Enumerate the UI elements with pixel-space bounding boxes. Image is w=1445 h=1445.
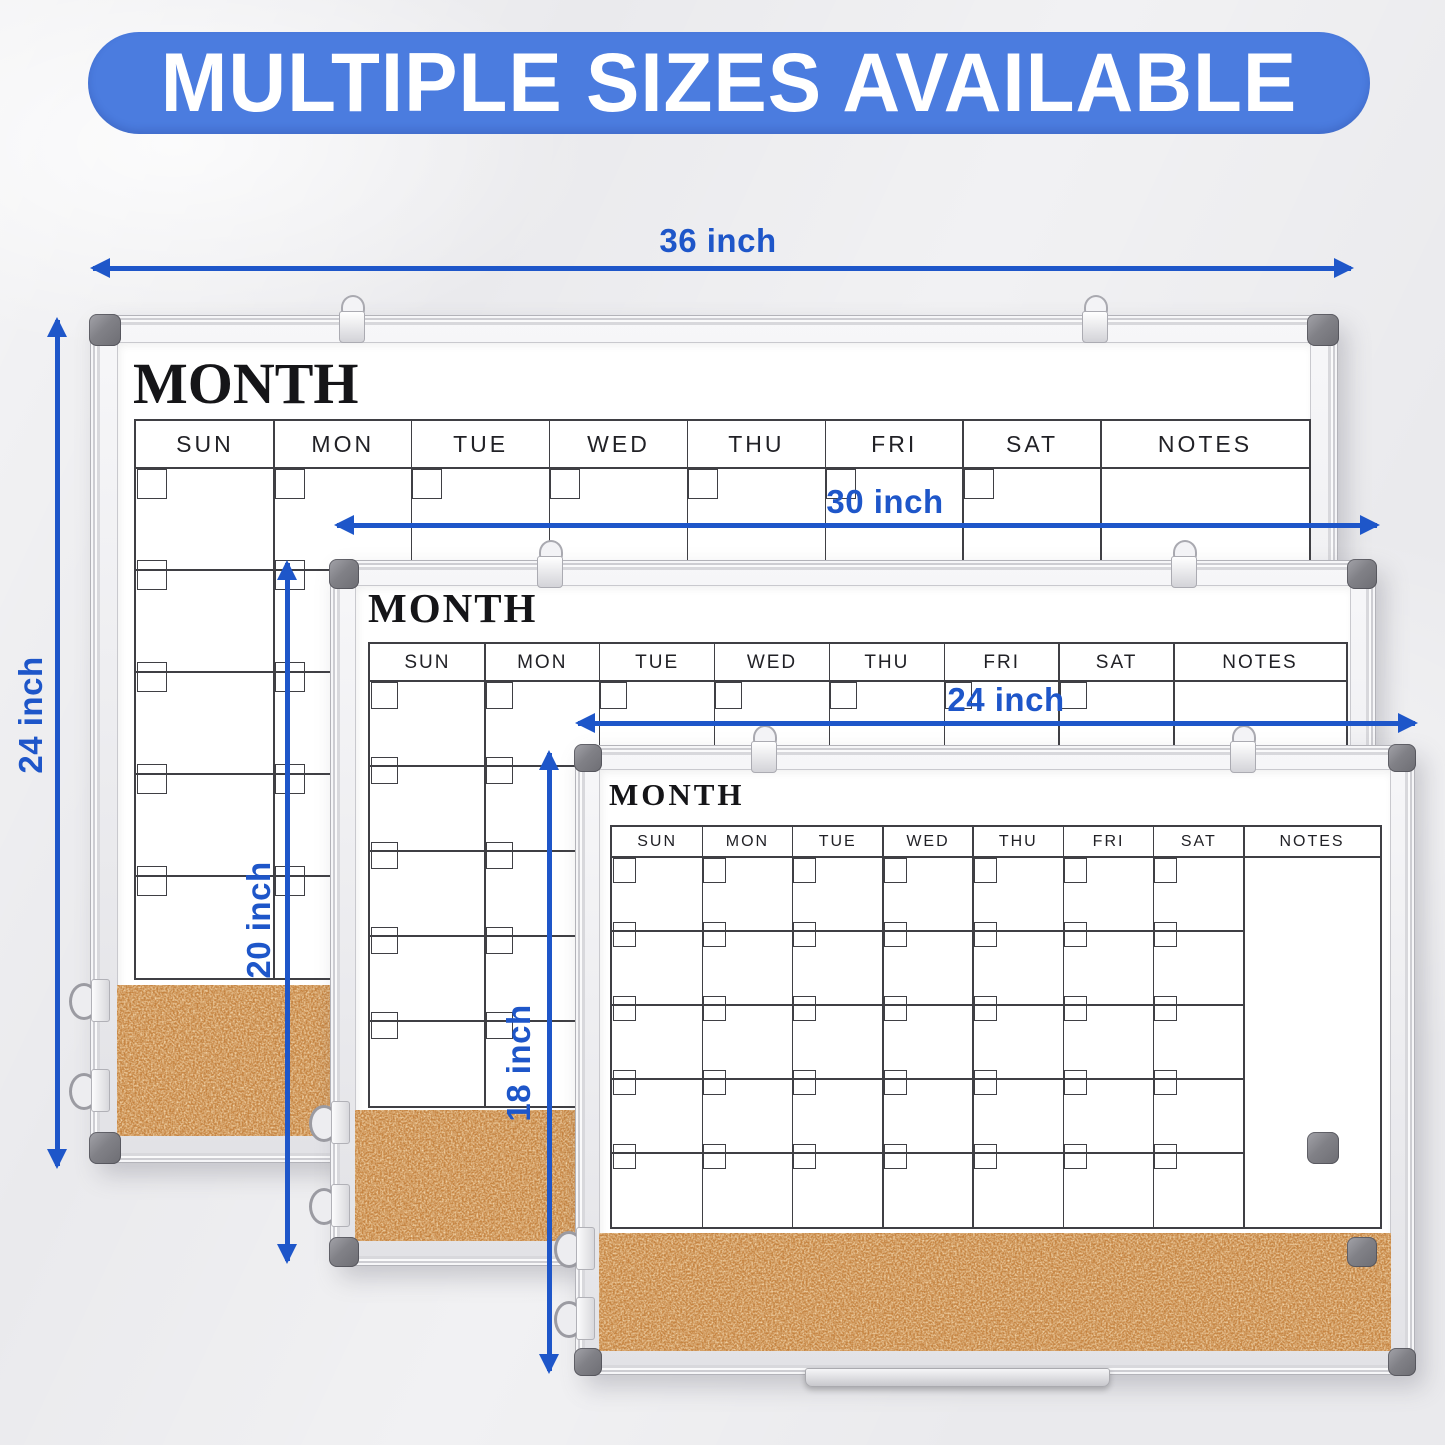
side-clip (69, 1069, 117, 1111)
date-corner-box (1064, 1144, 1087, 1169)
dimension-arrow-20-inch-height: 20 inch (285, 563, 290, 1261)
dimension-arrow-24-inch-height: 24 inch (55, 320, 60, 1166)
date-corner-box (613, 1144, 636, 1169)
banner-text: MULTIPLE SIZES AVAILABLE (161, 35, 1298, 131)
corner-cap (574, 744, 602, 772)
date-corner-box (1154, 1070, 1177, 1095)
day-header-cell: TUE (600, 644, 715, 681)
marker-tray (805, 1368, 1110, 1387)
date-corner-box (884, 858, 907, 883)
calendar-grid: SUNMONTUEWEDTHUFRISATNOTES (610, 825, 1382, 1229)
dimension-arrow-36-inch-width: 36 inch (93, 266, 1351, 271)
day-header-cell: TUE (412, 421, 550, 468)
dimension-label-24-inch-width: 24 inch (947, 681, 1064, 719)
date-corner-box (1064, 1070, 1087, 1095)
date-corner-box (703, 1144, 726, 1169)
calendar-board-24x18-inch: MONTHSUNMONTUEWEDTHUFRISATNOTES (575, 745, 1415, 1375)
hanging-hook (748, 725, 780, 775)
date-corner-box (486, 927, 513, 954)
corner-cap (1347, 559, 1377, 589)
date-corner-box (884, 1144, 907, 1169)
date-corner-box (613, 1070, 636, 1095)
dimension-label-36-inch: 36 inch (659, 222, 776, 260)
day-header-cell: THU (687, 421, 825, 468)
day-header-cell: TUE (793, 827, 883, 857)
hanging-hook (1168, 540, 1200, 590)
corner-cap (329, 559, 359, 589)
date-corner-box (1064, 996, 1087, 1021)
date-corner-box (793, 858, 816, 883)
date-corner-box (613, 922, 636, 947)
date-corner-box (830, 682, 857, 709)
month-title: MONTH (609, 779, 745, 812)
side-clip (309, 1101, 357, 1143)
day-header-cell: THU (829, 644, 944, 681)
date-corner-box (974, 1070, 997, 1095)
corner-cap (574, 1348, 602, 1376)
date-corner-box (371, 927, 398, 954)
day-header-cell: SUN (370, 644, 485, 681)
date-corner-box (884, 1070, 907, 1095)
date-corner-box (371, 757, 398, 784)
date-corner-box (974, 1144, 997, 1169)
date-corner-box (688, 469, 718, 499)
side-clip (554, 1227, 602, 1269)
date-corner-box (486, 682, 513, 709)
day-header-cell: SAT (963, 421, 1101, 468)
date-corner-box (550, 469, 580, 499)
notes-header-cell: NOTES (1174, 644, 1346, 681)
date-corner-box (275, 469, 305, 499)
date-corner-box (703, 1070, 726, 1095)
dimension-label-20-inch: 20 inch (240, 861, 278, 978)
date-corner-box (793, 1144, 816, 1169)
day-header-cell: THU (973, 827, 1063, 857)
date-corner-box (1154, 1144, 1177, 1169)
day-header-cell: WED (550, 421, 688, 468)
side-clip (554, 1297, 602, 1339)
date-corner-box (974, 922, 997, 947)
date-corner-box (793, 922, 816, 947)
dimension-arrow-24-inch-width: 24 inch (578, 721, 1415, 726)
dimension-label-30-inch: 30 inch (826, 483, 943, 521)
date-corner-box (974, 858, 997, 883)
day-header-cell: FRI (825, 421, 963, 468)
dimension-arrow-30-inch-width: 30 inch (337, 523, 1377, 528)
date-corner-box (613, 858, 636, 883)
grid-line (136, 467, 1309, 469)
date-corner-box (137, 866, 167, 896)
date-corner-box (371, 842, 398, 869)
corner-cap (1347, 1237, 1377, 1267)
date-corner-box (1154, 922, 1177, 947)
day-header-cell: WED (715, 644, 830, 681)
date-corner-box (703, 922, 726, 947)
hanging-hook (1079, 295, 1111, 345)
date-corner-box (1154, 858, 1177, 883)
grid-line (370, 680, 1346, 682)
date-corner-box (793, 996, 816, 1021)
day-header-cell: MON (702, 827, 792, 857)
cork-strip (599, 1233, 1391, 1351)
date-corner-box (1064, 922, 1087, 947)
dimension-arrow-18-inch-height: 18 inch (547, 753, 552, 1371)
date-corner-box (703, 996, 726, 1021)
date-corner-box (137, 469, 167, 499)
day-header-cell: SUN (612, 827, 702, 857)
date-corner-box (703, 858, 726, 883)
day-header-cell: FRI (1063, 827, 1153, 857)
day-header-cell: SUN (136, 421, 274, 468)
month-title: MONTH (368, 587, 537, 630)
date-corner-box (137, 662, 167, 692)
hanging-hook (534, 540, 566, 590)
grid-line (1243, 827, 1245, 1227)
date-corner-box (486, 757, 513, 784)
date-corner-box (371, 682, 398, 709)
date-corner-box (884, 996, 907, 1021)
day-header-cell: SAT (1154, 827, 1244, 857)
day-header-cell: MON (274, 421, 412, 468)
date-corner-box (600, 682, 627, 709)
date-corner-box (1154, 996, 1177, 1021)
multiple-sizes-banner: MULTIPLE SIZES AVAILABLE (88, 32, 1370, 134)
hanging-hook (336, 295, 368, 345)
day-header-cell: SAT (1059, 644, 1174, 681)
notes-header-cell: NOTES (1244, 827, 1380, 857)
date-corner-box (137, 764, 167, 794)
side-clip (309, 1184, 357, 1226)
corner-cap (89, 1132, 121, 1164)
date-corner-box (793, 1070, 816, 1095)
date-corner-box (715, 682, 742, 709)
month-title: MONTH (133, 354, 359, 415)
side-clip (69, 979, 117, 1021)
corner-cap (89, 314, 121, 346)
date-corner-box (371, 1012, 398, 1039)
corner-cap (329, 1237, 359, 1267)
hanging-hook (1227, 725, 1259, 775)
corner-cap (1388, 1348, 1416, 1376)
dimension-label-18-inch: 18 inch (500, 1004, 538, 1121)
day-header-cell: WED (883, 827, 973, 857)
day-header-cell: MON (485, 644, 600, 681)
date-corner-box (974, 996, 997, 1021)
corner-cap (1307, 1132, 1339, 1164)
date-corner-box (1064, 858, 1087, 883)
corner-cap (1307, 314, 1339, 346)
date-corner-box (884, 922, 907, 947)
date-corner-box (486, 842, 513, 869)
corner-cap (1388, 744, 1416, 772)
date-corner-box (613, 996, 636, 1021)
day-header-cell: FRI (944, 644, 1059, 681)
date-corner-box (137, 560, 167, 590)
dimension-label-24-inch-height: 24 inch (12, 656, 50, 773)
date-corner-box (964, 469, 994, 499)
date-corner-box (412, 469, 442, 499)
notes-header-cell: NOTES (1101, 421, 1309, 468)
